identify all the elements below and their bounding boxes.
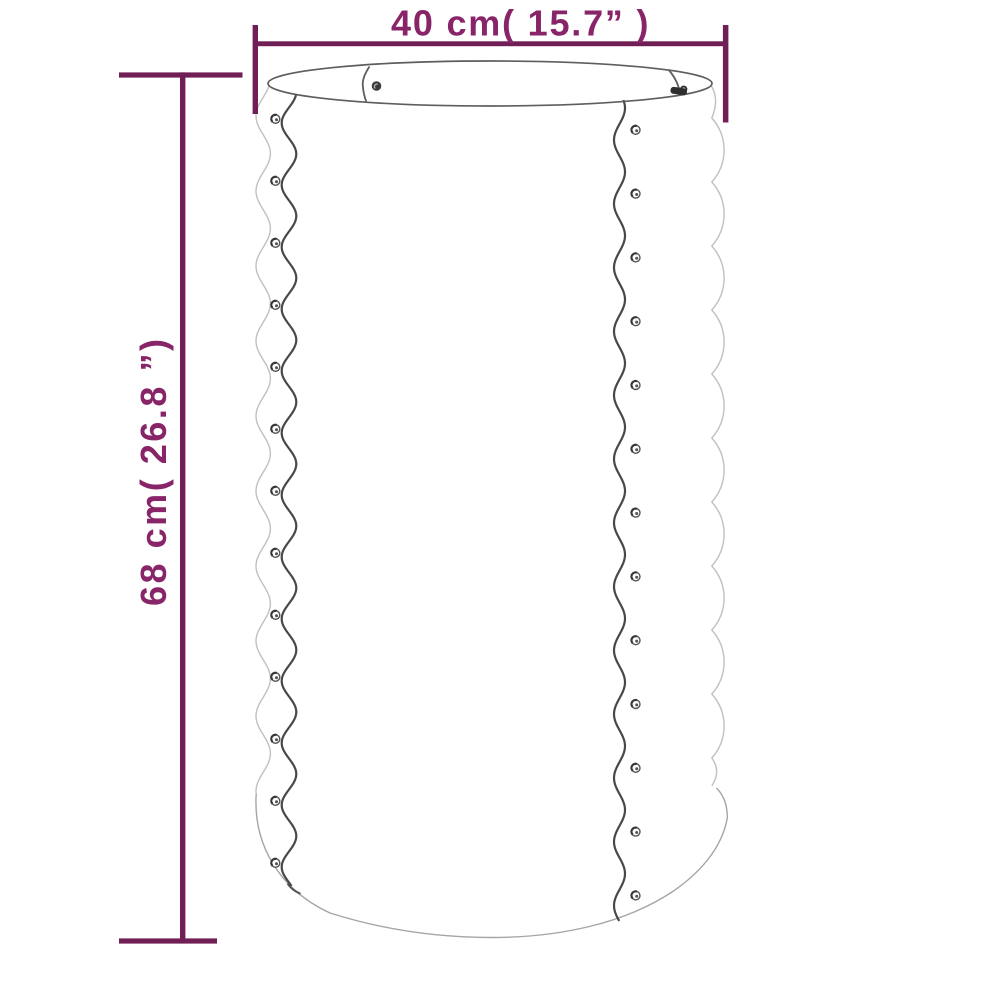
svg-text:40 cm( 15.7” ): 40 cm( 15.7” )	[391, 3, 649, 44]
svg-text:68 cm( 26.8 ”): 68 cm( 26.8 ”)	[133, 339, 174, 606]
